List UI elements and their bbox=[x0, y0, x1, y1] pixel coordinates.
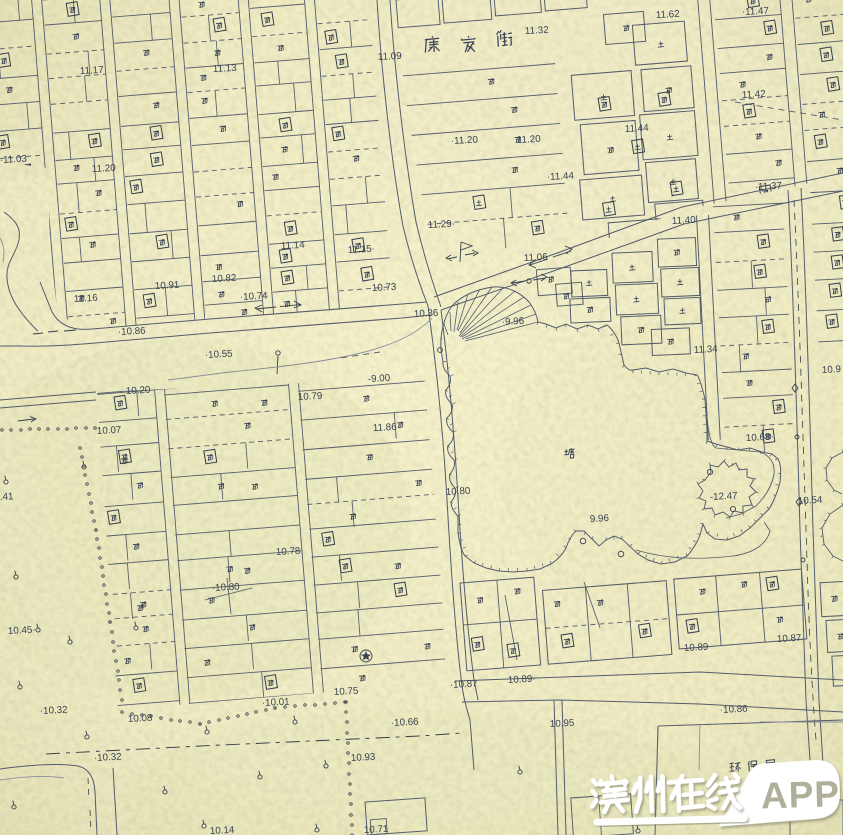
svg-text:10.91: 10.91 bbox=[155, 280, 180, 292]
svg-text:10.14: 10.14 bbox=[210, 825, 236, 835]
svg-text:10.54: 10.54 bbox=[798, 495, 824, 507]
svg-text:10.20: 10.20 bbox=[126, 385, 152, 397]
svg-text:10.45·: 10.45· bbox=[8, 625, 36, 637]
svg-text:11.86: 11.86 bbox=[373, 422, 398, 434]
svg-text:11.09: 11.09 bbox=[378, 51, 402, 63]
svg-text:10.71: 10.71 bbox=[364, 824, 389, 835]
svg-text:·11.47: ·11.47 bbox=[742, 6, 770, 18]
svg-text:9.96: 9.96 bbox=[590, 513, 610, 525]
svg-text:11.20: 11.20 bbox=[517, 134, 542, 146]
svg-text:·10.86: ·10.86 bbox=[720, 704, 749, 716]
svg-text:11.32: 11.32 bbox=[525, 25, 549, 37]
svg-text:11.15·: 11.15· bbox=[348, 244, 376, 256]
svg-text:·10.66: ·10.66 bbox=[391, 717, 420, 729]
svg-text:-9.00: -9.00 bbox=[368, 373, 391, 385]
svg-text:APP: APP bbox=[760, 773, 840, 816]
svg-text:10.89: 10.89 bbox=[684, 642, 709, 654]
svg-text:·10.01: ·10.01 bbox=[262, 697, 290, 709]
svg-text:11.29·: 11.29· bbox=[428, 219, 456, 231]
svg-text:10.75: 10.75 bbox=[334, 686, 360, 698]
svg-text:10.78.: 10.78. bbox=[276, 546, 304, 558]
svg-text:10.68·: 10.68· bbox=[746, 432, 774, 444]
svg-text:11.62: 11.62 bbox=[656, 9, 680, 21]
svg-text:·9.96: ·9.96 bbox=[502, 316, 525, 328]
svg-text:·10.80: ·10.80 bbox=[212, 582, 241, 594]
svg-text:10.36: 10.36 bbox=[414, 308, 440, 320]
svg-text:·10.32: ·10.32 bbox=[94, 752, 122, 764]
svg-text:10.73: 10.73 bbox=[372, 282, 398, 294]
svg-text:10.93: 10.93 bbox=[351, 752, 377, 764]
svg-text:11.20: 11.20 bbox=[92, 163, 117, 175]
svg-text:-12.47: -12.47 bbox=[710, 491, 738, 503]
svg-text:11.34: 11.34 bbox=[694, 344, 719, 356]
svg-text:11.16: 11.16 bbox=[74, 293, 99, 305]
svg-text:11.14: 11.14 bbox=[281, 240, 306, 252]
svg-text:11.13: 11.13 bbox=[213, 63, 238, 75]
svg-text:11.44: 11.44 bbox=[625, 123, 650, 135]
svg-text:·10.87: ·10.87 bbox=[450, 679, 478, 691]
svg-text:10.07: 10.07 bbox=[97, 425, 122, 437]
svg-text:11.40: 11.40 bbox=[672, 215, 697, 227]
svg-text:10.08: 10.08 bbox=[128, 713, 154, 725]
svg-text:·10.86: ·10.86 bbox=[118, 326, 147, 338]
svg-text:·11.03: ·11.03 bbox=[0, 154, 28, 166]
svg-text:·10.32: ·10.32 bbox=[40, 705, 68, 717]
svg-text:10.95: 10.95 bbox=[550, 718, 576, 730]
svg-text:.41: .41 bbox=[0, 491, 14, 503]
svg-text:·11.37: ·11.37 bbox=[755, 181, 783, 193]
svg-text:10.89·: 10.89· bbox=[508, 674, 536, 686]
svg-text:·11.44: ·11.44 bbox=[547, 171, 575, 183]
svg-text:·10.74: ·10.74 bbox=[240, 291, 269, 303]
svg-text:11.06: 11.06 bbox=[524, 252, 549, 264]
svg-text:10.79: 10.79 bbox=[298, 391, 323, 403]
svg-text:11.42: 11.42 bbox=[742, 89, 766, 101]
svg-text:10.80: 10.80 bbox=[446, 486, 472, 498]
svg-text:10.82: 10.82 bbox=[212, 273, 237, 285]
svg-text:10.87: 10.87 bbox=[777, 633, 802, 645]
svg-text:10.9: 10.9 bbox=[822, 364, 842, 376]
svg-text:11.17: 11.17 bbox=[80, 65, 104, 77]
svg-text:·11.20: ·11.20 bbox=[451, 135, 479, 147]
svg-text:·10.55: ·10.55 bbox=[205, 349, 234, 361]
